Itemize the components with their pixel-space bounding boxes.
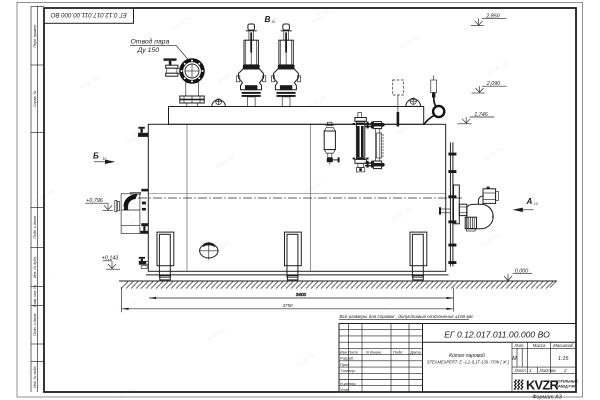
svg-text:N докум.: N докум.: [366, 349, 382, 354]
svg-text:КОТЕЛЬНЫЙ: КОТЕЛЬНЫЙ: [556, 380, 578, 384]
svg-text:Подп.: Подп.: [393, 349, 403, 354]
svg-text:Инв. № подл.: Инв. № подл.: [33, 366, 37, 388]
svg-text:Взам. инв. №: Взам. инв. №: [33, 285, 37, 307]
svg-text:Дата: Дата: [410, 349, 422, 354]
svg-text:2: 2: [563, 368, 567, 373]
svg-text:STEAMEXPERT- Е -1,2-0,1Т-130-: STEAMEXPERT- Е -1,2-0,1Т-130- ГЛЖ ( Ж ): [427, 359, 510, 364]
svg-text:10: 10: [534, 202, 538, 206]
svg-text:KVZR: KVZR: [526, 377, 558, 392]
svg-text:10: 10: [271, 20, 275, 24]
svg-text:Листов: Листов: [539, 368, 557, 373]
svg-text:Ду 150: Ду 150: [137, 47, 160, 54]
svg-text:М: М: [512, 356, 517, 362]
svg-text:Масштаб: Масштаб: [553, 343, 574, 348]
svg-text:А: А: [526, 197, 533, 206]
svg-text:Н.контр.: Н.контр.: [340, 381, 356, 386]
svg-text:Лит.: Лит.: [513, 343, 524, 348]
svg-text:Перв. примен.: Перв. примен.: [33, 24, 37, 48]
svg-text:Утв.: Утв.: [340, 387, 349, 392]
svg-text:Формат А3: Формат А3: [532, 395, 562, 400]
svg-text:Б: Б: [93, 152, 99, 161]
svg-text:Пров.: Пров.: [340, 362, 350, 367]
svg-text:Котел паровой: Котел паровой: [449, 352, 485, 359]
svg-text:3400: 3400: [296, 292, 307, 297]
svg-text:ЕГ 0.12.017.011.00.000 ВО: ЕГ 0.12.017.011.00.000 ВО: [444, 329, 550, 339]
svg-text:Изм Лист: Изм Лист: [340, 349, 359, 354]
svg-text:Инв. № дубл.: Инв. № дубл.: [33, 256, 37, 278]
svg-text:В: В: [265, 15, 271, 24]
svg-text:Подп. и дата: Подп. и дата: [33, 216, 37, 239]
svg-text:ЗАВОД РЭР: ЗАВОД РЭР: [556, 385, 576, 389]
svg-text:1:15: 1:15: [558, 356, 569, 362]
svg-text:Т.контр.: Т.контр.: [340, 368, 356, 373]
svg-text:Отвод пара: Отвод пара: [131, 38, 170, 46]
svg-text:Подп. и дата: Подп. и дата: [33, 313, 37, 336]
svg-text:Лист: Лист: [514, 368, 527, 373]
svg-text:3750: 3750: [282, 303, 293, 308]
svg-text:ЕГ 0.12.017.011.00.000 ВО: ЕГ 0.12.017.011.00.000 ВО: [50, 11, 126, 18]
svg-text:Разраб.: Разраб.: [340, 356, 354, 361]
svg-text:Масса: Масса: [533, 343, 546, 348]
svg-text:Справ. №: Справ. №: [33, 91, 37, 107]
svg-text:Все размеры для справок , допу: Все размеры для справок , допустимые отк…: [340, 314, 474, 319]
